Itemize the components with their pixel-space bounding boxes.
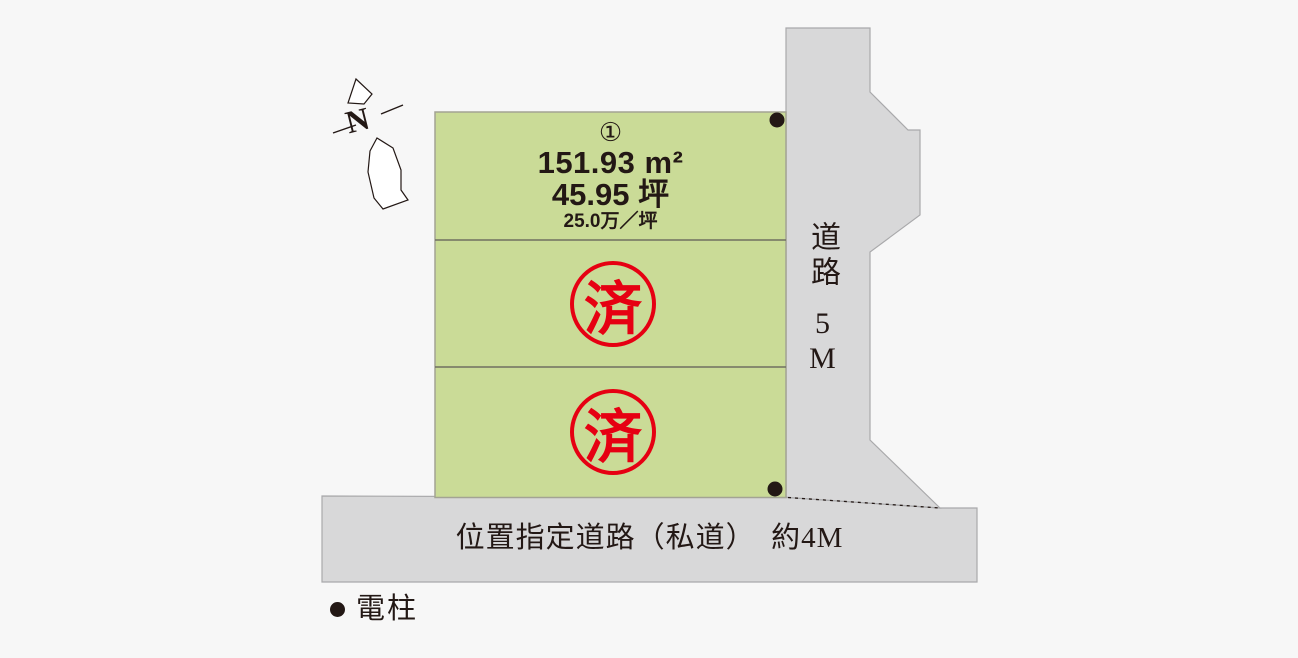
compass-axis-dash-right: [381, 105, 403, 114]
compass-tail: [368, 138, 408, 209]
lot-3-sold-stamp: 済: [570, 389, 656, 475]
lot-1-info: ① 151.93 m² 45.95 坪 25.0万／坪: [435, 117, 786, 233]
electric-pole-icon: [330, 602, 345, 617]
electric-pole-marker-bottom: [768, 482, 783, 497]
lot-1-number: ①: [435, 117, 786, 147]
site-plan-drawing: [0, 0, 1298, 658]
right-road-name: 道路: [800, 221, 844, 291]
legend: 電柱: [330, 593, 418, 625]
lot-2-sold-stamp: 済: [570, 261, 656, 347]
lot-1-area-tsubo: 45.95 坪: [435, 179, 786, 210]
lot-1-price-per-tsubo: 25.0万／坪: [435, 210, 786, 233]
lot-layout-map: N ① 151.93 m² 45.95 坪 25.0万／坪 済 済 道路 5M …: [0, 0, 1298, 658]
bottom-road-label: 位置指定道路（私道） 約4M: [322, 520, 977, 556]
legend-label: 電柱: [356, 593, 418, 625]
compass-icon: [333, 79, 408, 209]
right-road-label: 道路 5M: [796, 221, 848, 377]
right-road-width: 5M: [805, 307, 839, 377]
lot-1-area-m2: 151.93 m²: [435, 147, 786, 179]
